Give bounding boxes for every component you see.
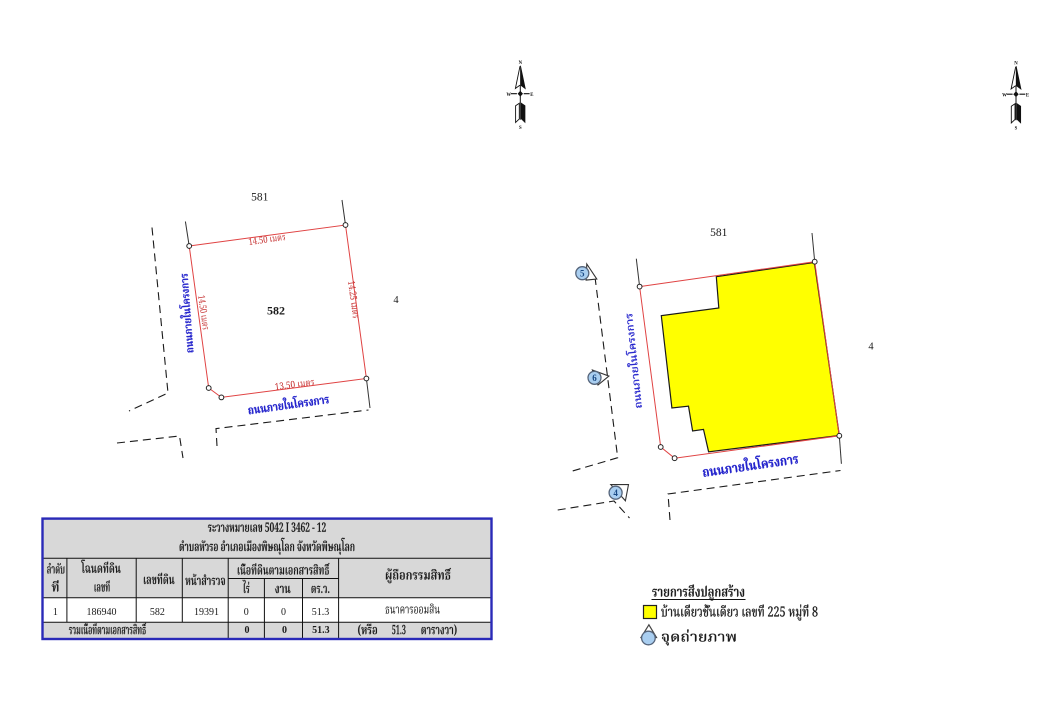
svg-text:N: N bbox=[519, 61, 523, 66]
svg-text:581: 581 bbox=[710, 227, 728, 239]
svg-text:E: E bbox=[530, 93, 533, 98]
svg-text:S: S bbox=[1015, 127, 1018, 132]
svg-text:5: 5 bbox=[580, 268, 585, 278]
svg-text:0: 0 bbox=[245, 625, 250, 636]
svg-text:W: W bbox=[1002, 93, 1007, 98]
svg-text:51.3: 51.3 bbox=[312, 625, 330, 636]
svg-text:6: 6 bbox=[592, 373, 597, 383]
svg-text:186940: 186940 bbox=[87, 607, 117, 618]
svg-text:0: 0 bbox=[281, 607, 286, 618]
svg-text:0: 0 bbox=[244, 607, 249, 618]
svg-text:19391: 19391 bbox=[194, 607, 219, 618]
svg-text:0: 0 bbox=[282, 625, 287, 636]
svg-text:4: 4 bbox=[613, 488, 618, 498]
svg-text:4: 4 bbox=[868, 342, 874, 353]
svg-text:4: 4 bbox=[393, 295, 399, 306]
svg-text:581: 581 bbox=[251, 192, 269, 204]
svg-text:51.3: 51.3 bbox=[312, 607, 330, 618]
svg-text:1: 1 bbox=[53, 607, 58, 618]
svg-text:N: N bbox=[1014, 61, 1018, 66]
svg-text:582: 582 bbox=[150, 607, 165, 618]
svg-text:E: E bbox=[1026, 93, 1029, 98]
svg-text:582: 582 bbox=[267, 304, 285, 318]
svg-text:S: S bbox=[519, 126, 522, 131]
svg-text:W: W bbox=[506, 93, 511, 98]
